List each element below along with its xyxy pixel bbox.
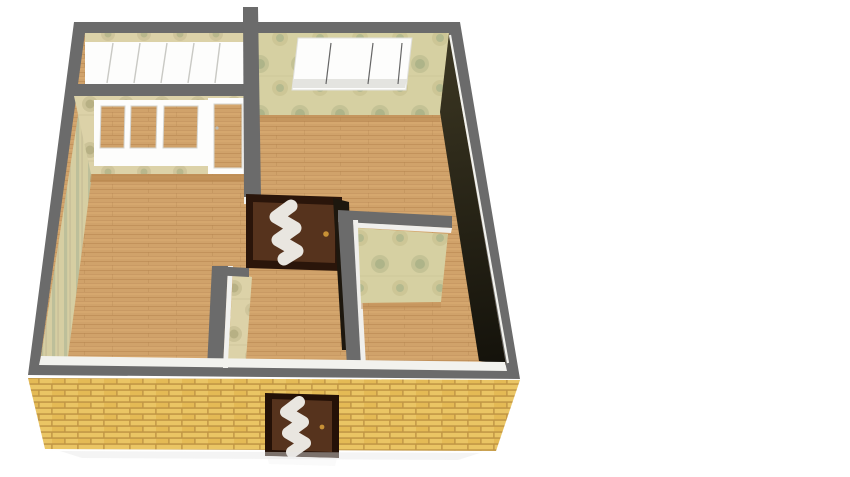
southeast-room-north-wall-face [358, 228, 448, 303]
balcony-door-handle [215, 126, 218, 129]
interior-door-group [246, 194, 342, 271]
floorplan-render-stage [0, 0, 850, 477]
partition-wall-cap [243, 7, 261, 197]
interior-door-handle [323, 231, 329, 237]
balcony-partition-wall-cap [74, 84, 252, 96]
southeast-room-floor-edge [361, 302, 441, 309]
balcony-soffit-wallpaper [85, 33, 247, 42]
balcony-door-pane [214, 104, 242, 168]
living-room-floor-edge [90, 174, 252, 182]
entrance-door-handle [320, 425, 325, 430]
north-room-window-sill [292, 79, 407, 88]
floorplan-3d-render [0, 0, 850, 477]
north-room-floor-edge [258, 115, 440, 122]
balcony-window-pane [130, 106, 157, 148]
balcony-window-pane [163, 106, 198, 148]
ground-shadow [60, 451, 480, 460]
balcony-window-pane [100, 106, 125, 148]
